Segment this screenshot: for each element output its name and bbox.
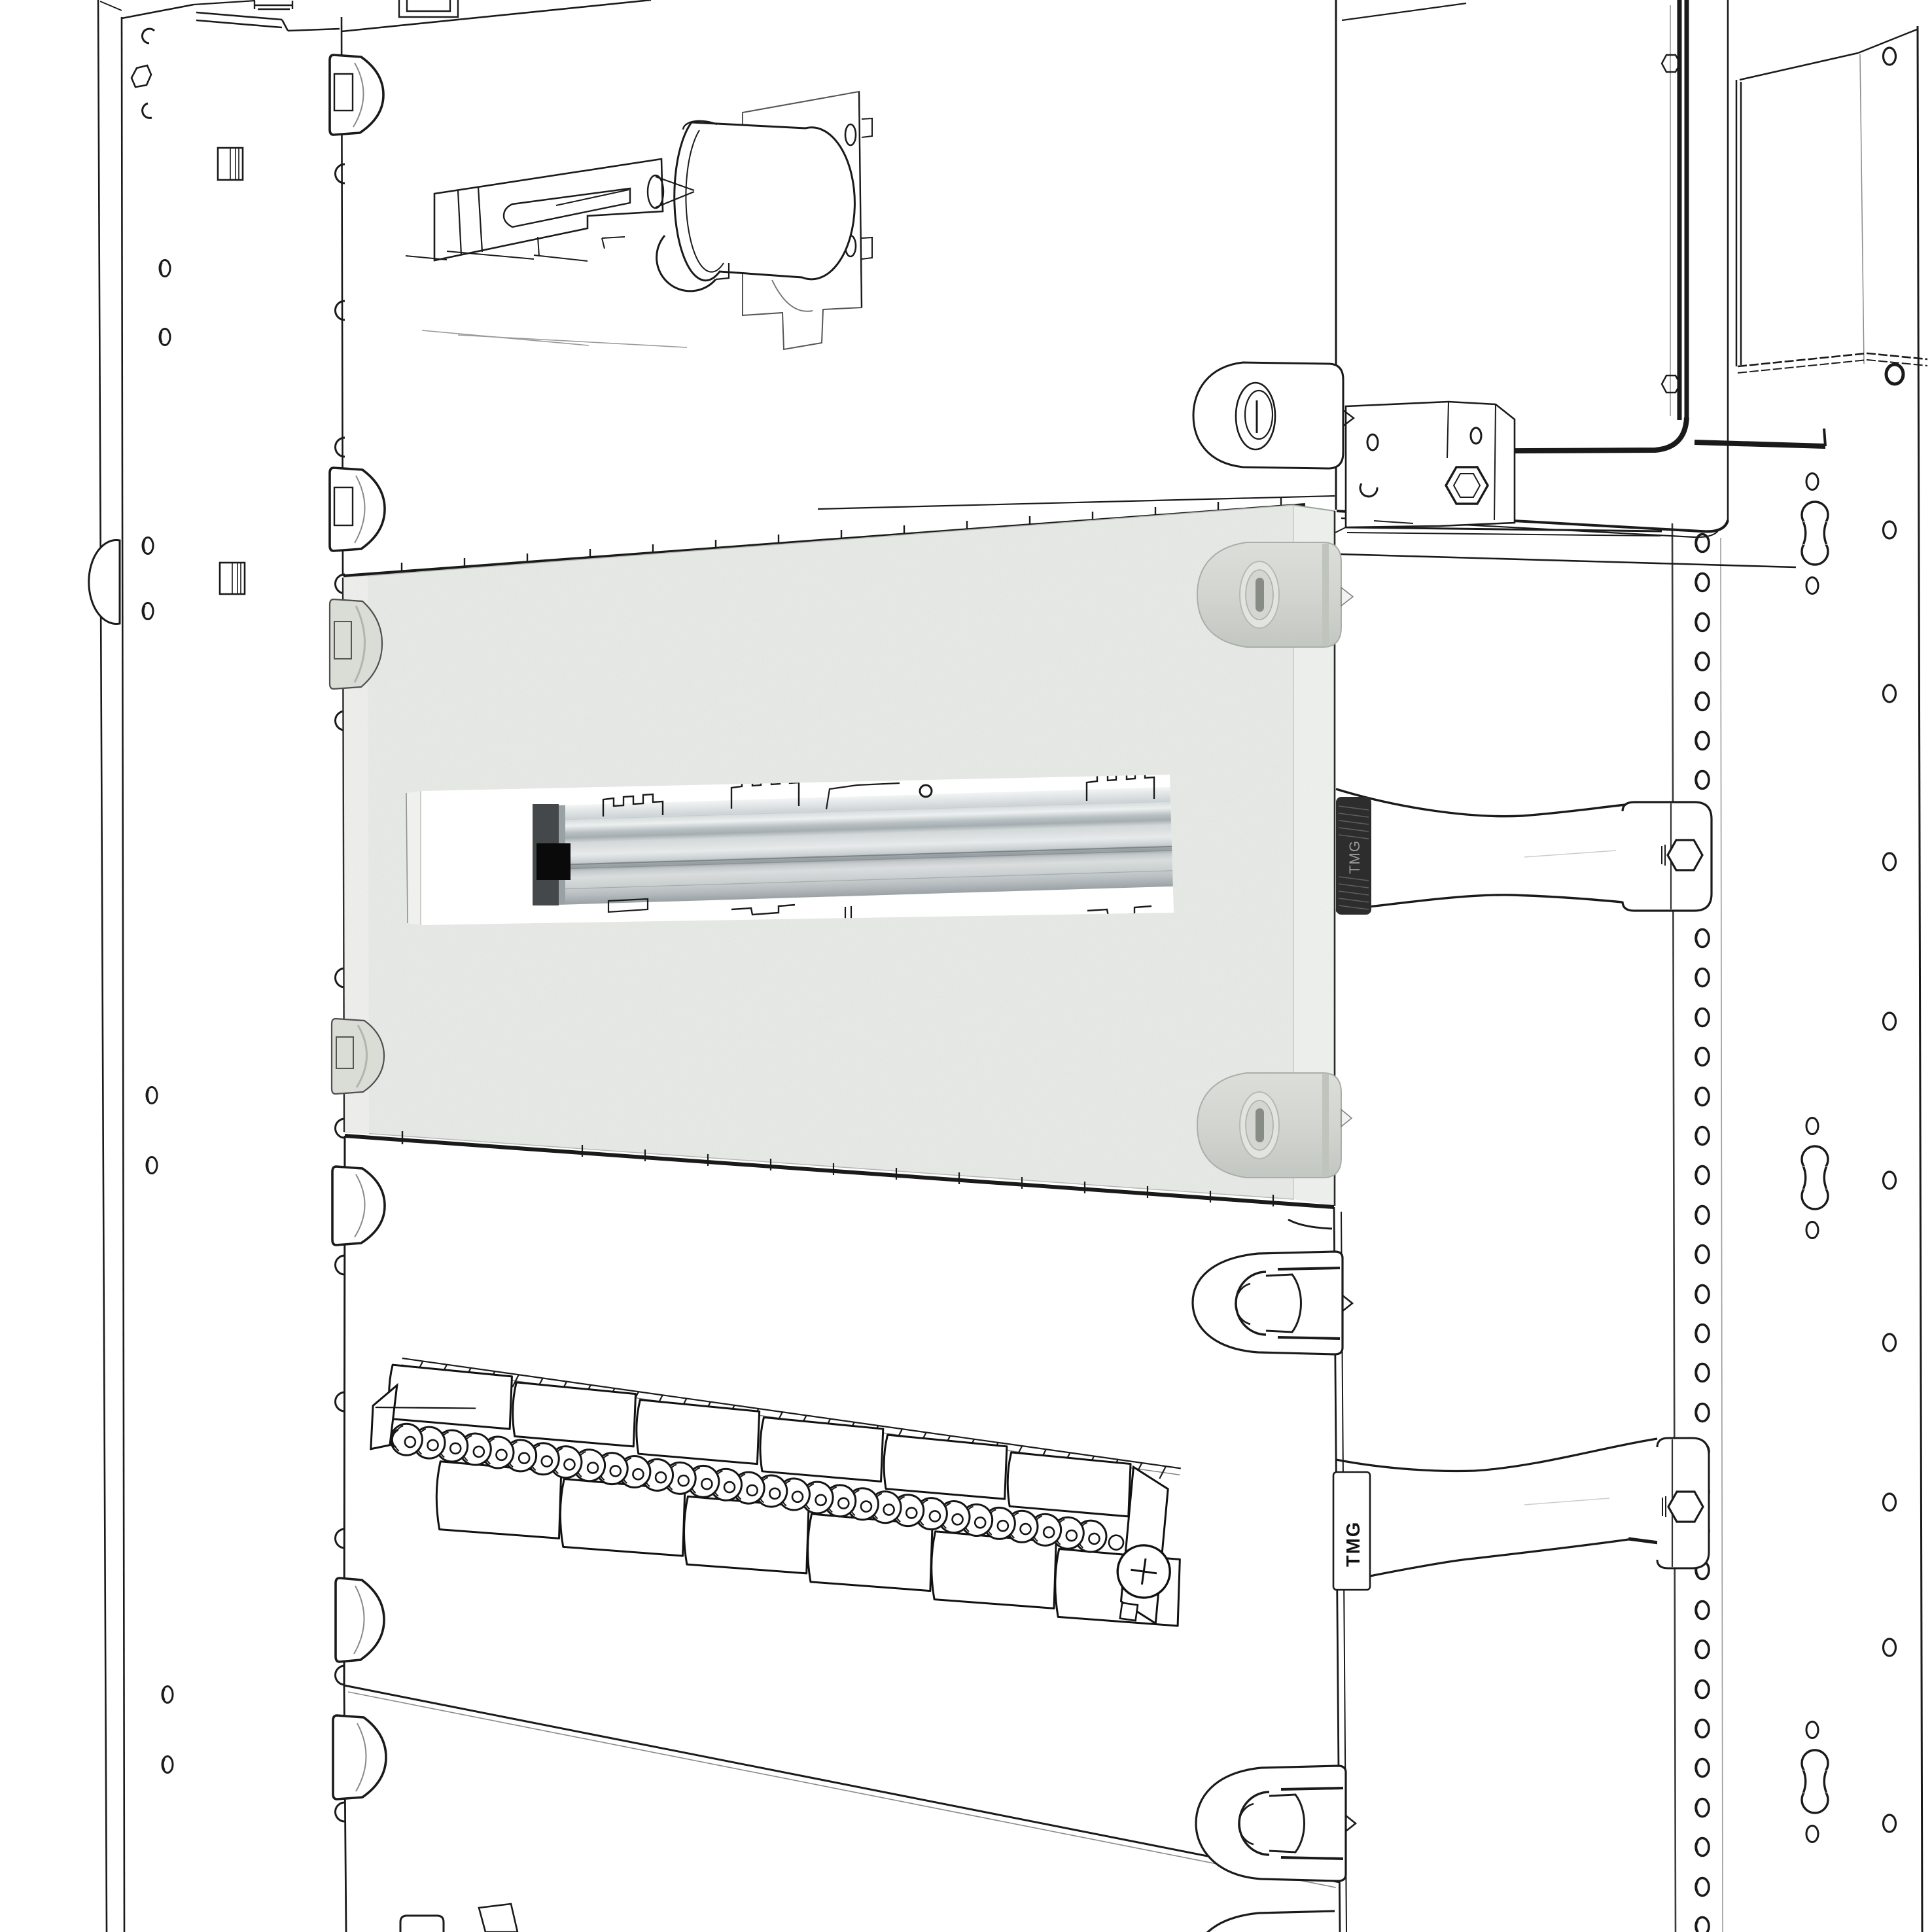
svg-text:TMG: TMG	[1346, 840, 1363, 874]
svg-text:TMG: TMG	[1343, 1521, 1364, 1567]
